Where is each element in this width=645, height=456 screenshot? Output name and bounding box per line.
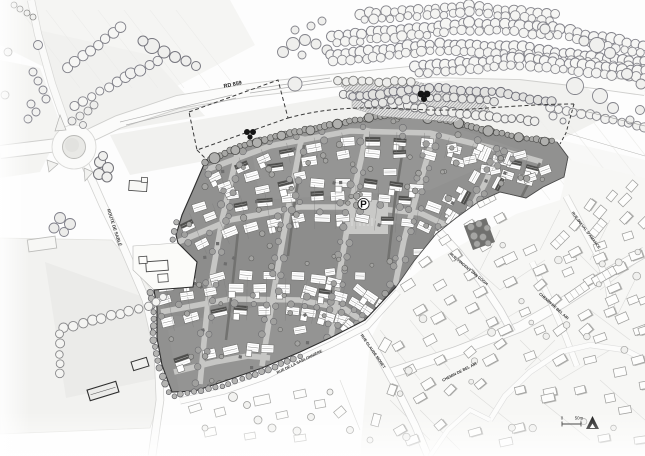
svg-text:P: P bbox=[360, 200, 367, 211]
